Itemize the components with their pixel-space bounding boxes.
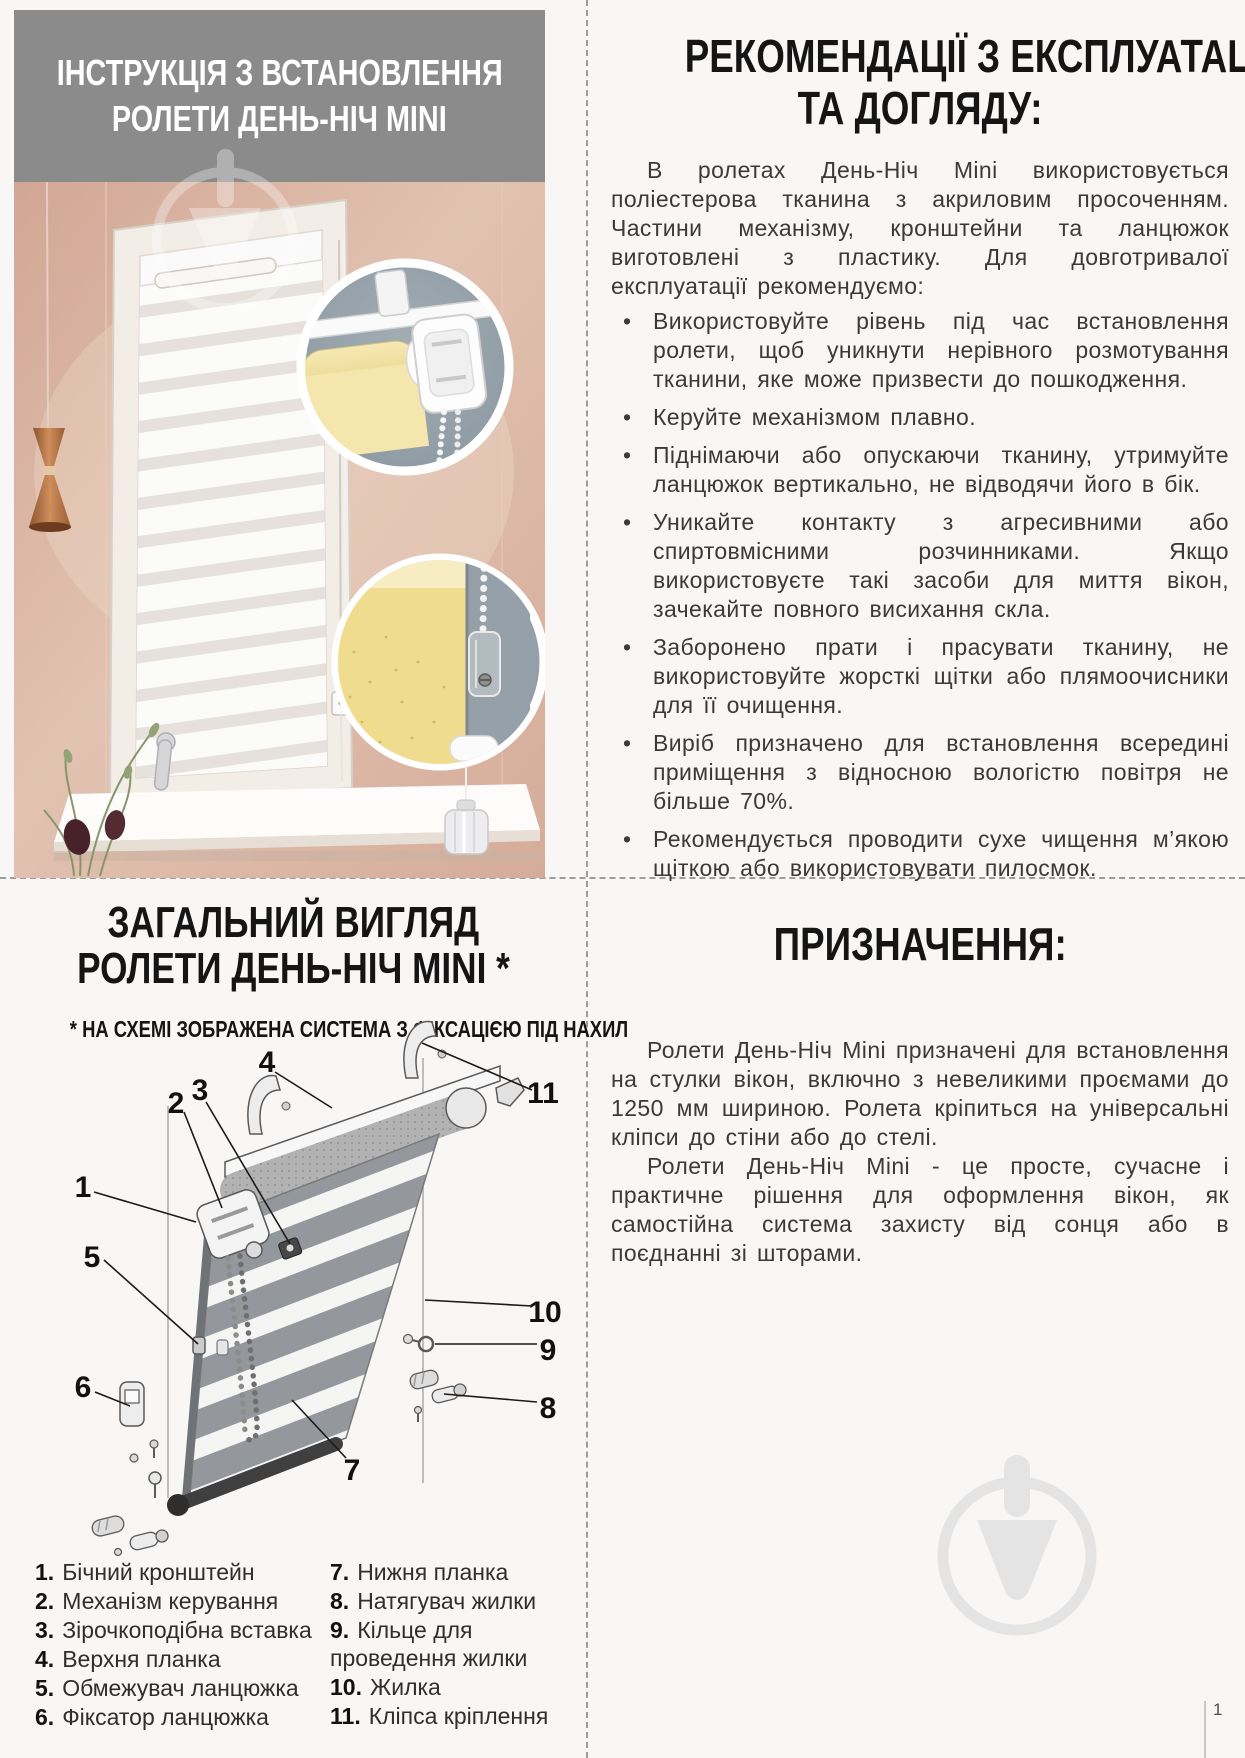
side-clip (496, 1078, 524, 1106)
recommendation-item: Використовуйте рівень під час встановлен… (611, 307, 1229, 394)
bottom-rail-cap (167, 1494, 189, 1516)
chain-fixator (120, 1382, 158, 1462)
recommendation-item: Піднімаючи або опускаючи тканину, утриму… (611, 441, 1229, 499)
legend-item: 4.Верхня планка (35, 1645, 323, 1673)
installation-banner: ІНСТРУКЦІЯ З ВСТАНОВЛЕННЯ РОЛЕТИ ДЕНЬ-НІ… (14, 10, 545, 182)
window-photo (14, 182, 545, 878)
recommendation-item: Уникайте контакту з агресивними або спир… (611, 508, 1229, 624)
callout-1: 1 (75, 1171, 92, 1204)
callout-3: 3 (192, 1074, 209, 1107)
recommendations-section: РЕКОМЕНДАЦІЇ З ЕКСПЛУАТАЦІЇ ТА ДОГЛЯДУ: … (587, 0, 1245, 877)
mounting-clip (248, 1076, 280, 1134)
zebra-blind (124, 212, 354, 792)
callout-5: 5 (84, 1241, 101, 1274)
callout-8: 8 (540, 1392, 557, 1425)
legend-item: 10.Жилка (330, 1673, 575, 1701)
recommendations-heading-line1: РЕКОМЕНДАЦІЇ З ЕКСПЛУАТАЦІЇ (685, 30, 1245, 82)
chain-limiter-2 (217, 1340, 228, 1355)
legend-item: 9.Кільце для проведення жилки (330, 1616, 575, 1672)
legend-item: 5.Обмежувач ланцюжка (35, 1674, 323, 1702)
chain-limiter (193, 1337, 205, 1354)
banner-title-line1: ІНСТРУКЦІЯ З ВСТАНОВЛЕННЯ (57, 50, 503, 96)
recommendation-item: Керуйте механізмом плавно. (611, 403, 1229, 432)
callout-7: 7 (344, 1454, 361, 1487)
purpose-paragraph-2: Ролети День-Ніч Mini - це просте, сучасн… (611, 1152, 1229, 1268)
mounting-clip (404, 1022, 436, 1078)
inset-fixator-circle (336, 554, 544, 768)
inset-wall-bracket (375, 269, 410, 316)
blind-diagram: 1 2 3 4 5 6 7 8 9 10 11 (14, 938, 574, 1560)
legend-item: 6.Фіксатор ланцюжка (35, 1703, 323, 1731)
callout-11: 11 (527, 1077, 559, 1110)
chain-sprocket (246, 1242, 262, 1258)
wire-washer (149, 1472, 161, 1484)
dowel-screws (91, 1514, 168, 1555)
recommendations-intro: В ролетах День-Ніч Mini використовується… (611, 156, 1229, 301)
legend-item: 1.Бічний кронштейн (35, 1558, 323, 1586)
legend-item: 2.Механізм керування (35, 1587, 323, 1615)
recommendations-list: Використовуйте рівень під час встановлен… (611, 307, 1229, 883)
purpose-paragraph-1: Ролети День-Ніч Mini призначені для вста… (611, 1036, 1229, 1152)
purpose-section: ПРИЗНАЧЕННЯ: Ролети День-Ніч Mini призна… (587, 878, 1245, 1758)
recommendation-item: Рекомендується проводити сухе чищення м’… (611, 825, 1229, 883)
callout-4: 4 (259, 1046, 276, 1079)
page-number-divider (1204, 1701, 1206, 1758)
legend-item: 8.Натягувач жилки (330, 1587, 575, 1615)
recommendations-heading-line2: ТА ДОГЛЯДУ: (798, 82, 1043, 134)
callout-2: 2 (168, 1087, 185, 1120)
window (110, 200, 354, 802)
ring-screw (404, 1335, 413, 1344)
roll-end-cap (446, 1088, 486, 1128)
wire-ring (419, 1337, 433, 1351)
legend-item: 3.Зірочкоподібна вставка (35, 1616, 323, 1644)
banner-title-line2: РОЛЕТИ ДЕНЬ-НІЧ MINI (112, 96, 447, 142)
recommendation-item: Заборонено прати і прасувати тканину, не… (611, 633, 1229, 720)
recommendation-item: Виріб призначено для встановлення всеред… (611, 729, 1229, 816)
recommendations-heading: РЕКОМЕНДАЦІЇ З ЕКСПЛУАТАЦІЇ ТА ДОГЛЯДУ: (611, 30, 1229, 134)
brand-watermark-icon (925, 1445, 1115, 1645)
purpose-heading: ПРИЗНАЧЕННЯ: (611, 918, 1229, 970)
page-number: 1 (1213, 1700, 1222, 1720)
instruction-page: ІНСТРУКЦІЯ З ВСТАНОВЛЕННЯ РОЛЕТИ ДЕНЬ-НІ… (0, 0, 1245, 1758)
callout-10: 10 (528, 1296, 561, 1329)
overview-section: ЗАГАЛЬНИЙ ВИГЛЯД РОЛЕТИ ДЕНЬ-НІЧ MINI * … (0, 878, 586, 1758)
installation-photo-section: ІНСТРУКЦІЯ З ВСТАНОВЛЕННЯ РОЛЕТИ ДЕНЬ-НІ… (14, 10, 545, 878)
callout-6: 6 (75, 1371, 92, 1404)
legend-left-column: 1.Бічний кронштейн 2.Механізм керування … (35, 1558, 323, 1732)
legend-right-column: 7.Нижня планка 8.Натягувач жилки 9.Кільц… (330, 1558, 575, 1731)
legend-item: 7.Нижня планка (330, 1558, 575, 1586)
callout-9: 9 (540, 1334, 557, 1367)
legend-item: 11.Кліпса кріплення (330, 1702, 575, 1730)
